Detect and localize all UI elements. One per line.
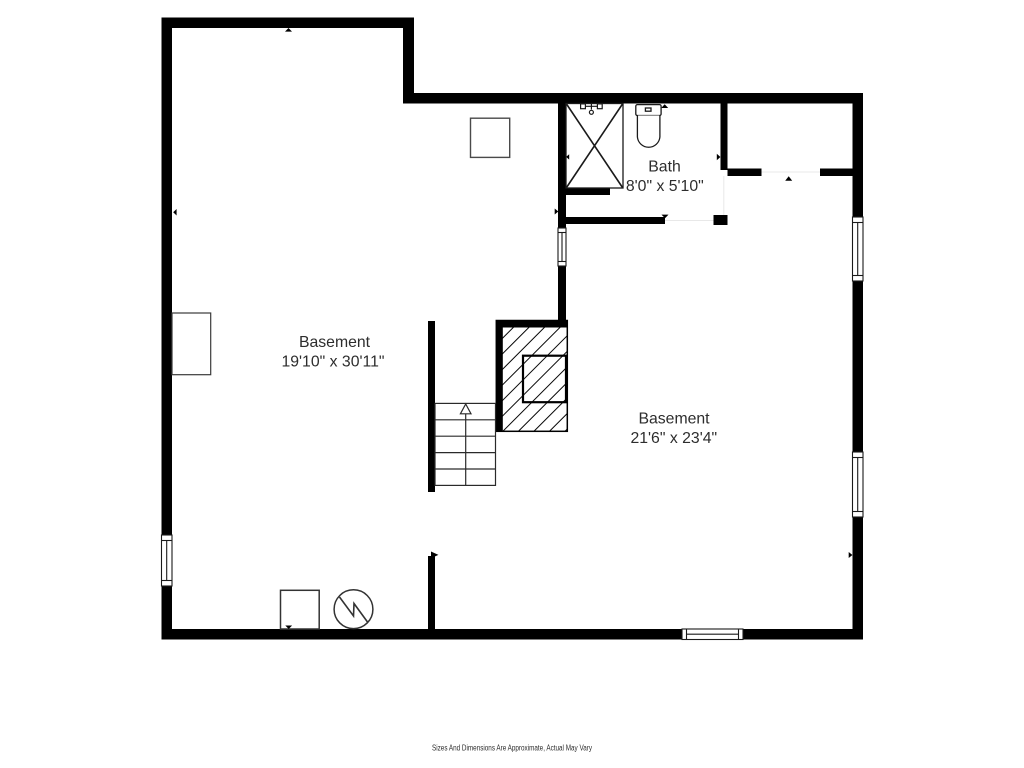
svg-text:Basement: Basement [299,334,371,351]
svg-text:8'0" x 5'10": 8'0" x 5'10" [626,178,704,195]
svg-text:Basement: Basement [638,411,710,428]
svg-text:21'6" x 23'4": 21'6" x 23'4" [630,430,717,447]
svg-text:Sizes And Dimensions Are Appro: Sizes And Dimensions Are Approximate, Ac… [432,744,592,753]
svg-text:19'10" x 30'11": 19'10" x 30'11" [281,354,384,371]
svg-text:Bath: Bath [648,159,681,176]
